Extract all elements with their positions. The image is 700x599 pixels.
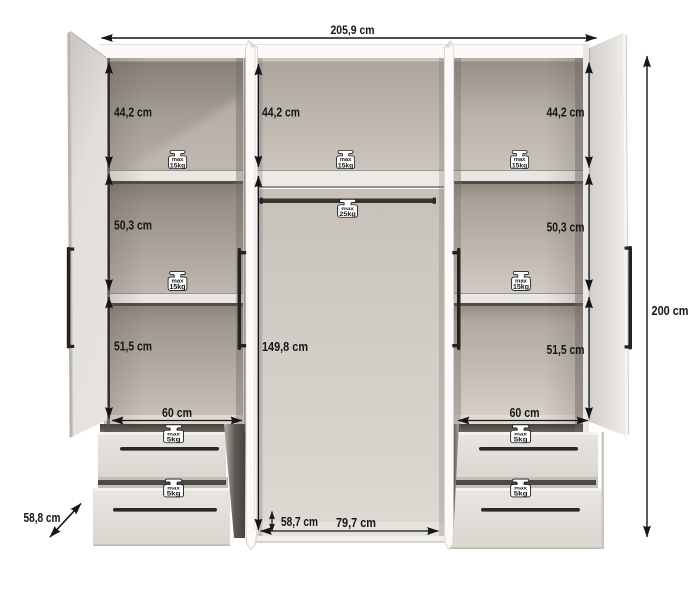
svg-text:205,9 cm: 205,9 cm bbox=[331, 23, 375, 37]
svg-text:60 cm: 60 cm bbox=[510, 406, 540, 420]
svg-text:15kg: 15kg bbox=[170, 284, 186, 291]
svg-text:15kg: 15kg bbox=[338, 162, 353, 169]
svg-text:79,7 cm: 79,7 cm bbox=[336, 516, 376, 530]
svg-text:51,5 cm: 51,5 cm bbox=[114, 340, 152, 354]
svg-text:15kg: 15kg bbox=[512, 162, 527, 169]
svg-text:50,3 cm: 50,3 cm bbox=[547, 221, 585, 235]
svg-text:51,5 cm: 51,5 cm bbox=[547, 343, 585, 357]
svg-text:50,3 cm: 50,3 cm bbox=[114, 219, 152, 233]
svg-text:44,2 cm: 44,2 cm bbox=[114, 106, 152, 120]
svg-text:60 cm: 60 cm bbox=[162, 406, 192, 420]
svg-text:149,8 cm: 149,8 cm bbox=[262, 340, 308, 354]
svg-text:5kg: 5kg bbox=[514, 491, 528, 498]
svg-text:44,2 cm: 44,2 cm bbox=[547, 106, 585, 120]
svg-text:58,7 cm: 58,7 cm bbox=[281, 515, 318, 529]
svg-text:5kg: 5kg bbox=[167, 491, 181, 498]
svg-text:5kg: 5kg bbox=[167, 437, 181, 444]
svg-text:58,8 cm: 58,8 cm bbox=[24, 511, 61, 525]
svg-text:15kg: 15kg bbox=[170, 162, 185, 169]
svg-text:5kg: 5kg bbox=[514, 437, 528, 444]
svg-text:200 cm: 200 cm bbox=[652, 304, 689, 318]
svg-text:25kg: 25kg bbox=[339, 211, 355, 218]
svg-text:44,2 cm: 44,2 cm bbox=[262, 106, 300, 120]
svg-text:15kg: 15kg bbox=[513, 284, 529, 291]
